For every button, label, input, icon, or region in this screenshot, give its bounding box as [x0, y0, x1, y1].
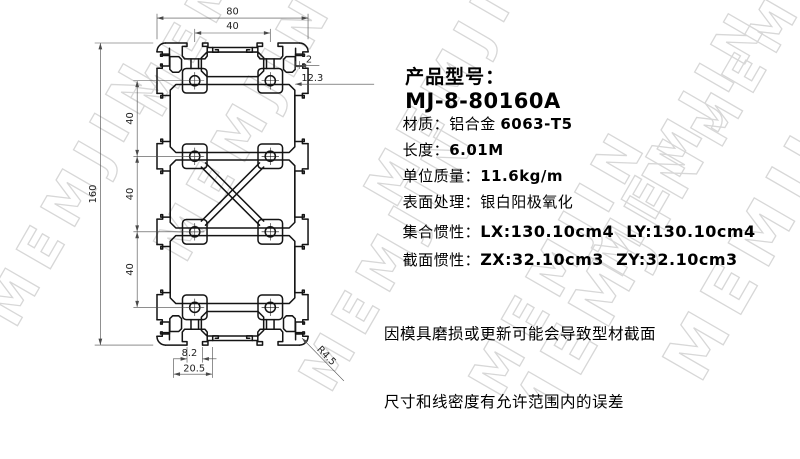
product-model-label: 产品型号： [405, 67, 505, 88]
spec-panel: 产品型号： MJ-8-80160A 材质：铝合金 6063-T5 长度：6.01… [380, 0, 798, 400]
screw-bosses [182, 68, 282, 319]
inertia-label: 截面惯性： [403, 252, 481, 269]
disclaimer-line-1: 因模具磨损或更新可能会导致型材截面 [384, 324, 656, 347]
profile-outline [157, 43, 308, 345]
dim-module-1: 40 [125, 112, 136, 124]
dim-slot-opening: 8.2 [182, 348, 198, 359]
dim-module-3: 40 [125, 263, 136, 275]
cavity-band [170, 85, 295, 304]
disclaimer-line-2: 尺寸和线密度有允许范围内的误差 [384, 392, 656, 415]
dim-side-depth: 12.3 [301, 73, 323, 84]
dim-slot-pitch: 40 [226, 21, 238, 32]
dim-top-wall: 2 [306, 55, 312, 66]
spec-value-bold: 6063-T5 [500, 115, 572, 133]
x-brace [201, 163, 263, 225]
profile-drawing: 80 40 2 12.3 160 40 40 40 8.2 20.5 R4.5 [60, 0, 390, 400]
inertia-value: ZX:32.10cm3 ZY:32.10cm3 [480, 250, 737, 269]
datasheet-page: { "watermark": { "text": "MEMJIN" }, "ti… [0, 0, 800, 400]
dim-overall-width: 80 [226, 6, 238, 17]
dim-module-2: 40 [125, 188, 136, 200]
crosshairs [186, 72, 279, 316]
dim-overall-height: 160 [88, 185, 99, 204]
dim-corner-radius: R4.5 [314, 344, 337, 368]
dim-edge-offset: 20.5 [183, 363, 205, 374]
disclaimer-note: 因模具磨损或更新可能会导致型材截面 尺寸和线密度有允许范围内的误差 [384, 279, 656, 459]
